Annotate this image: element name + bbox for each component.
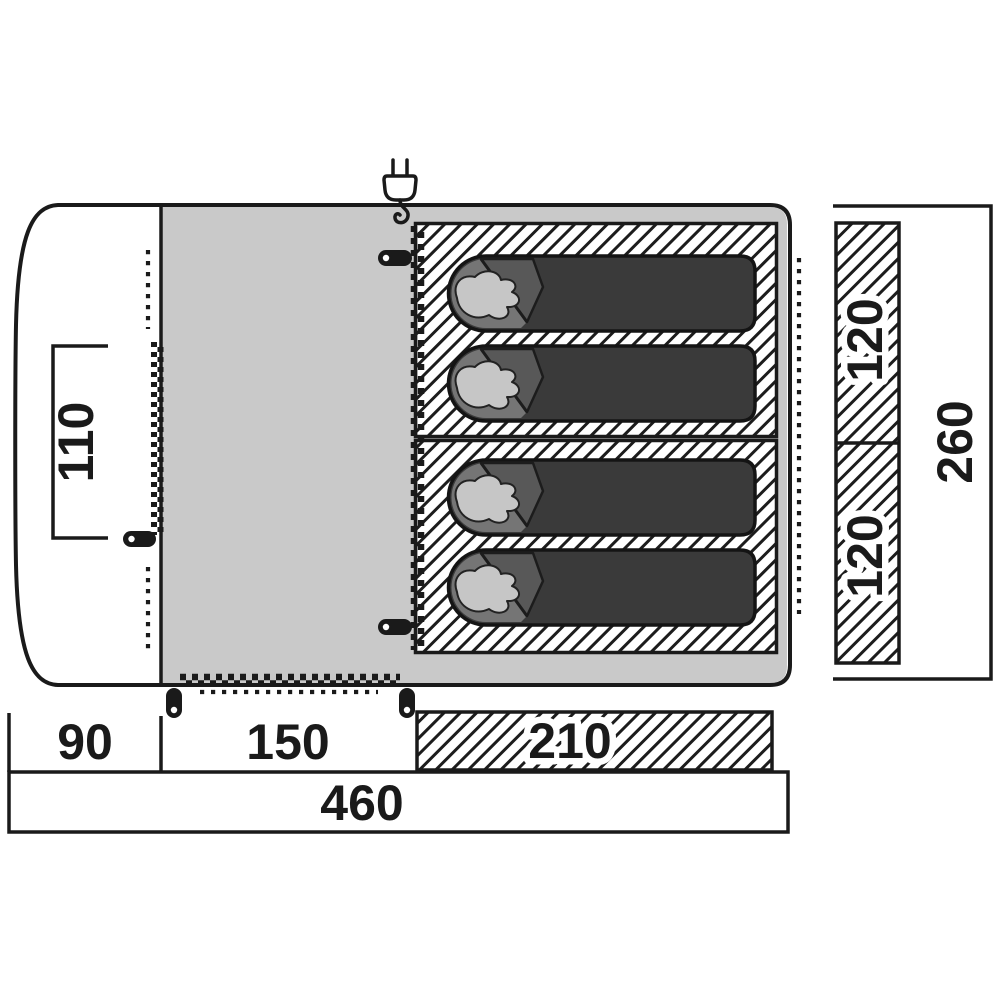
dimension-sections: 90 150 210 (9, 712, 772, 772)
sleeping-depth-label: 210 (528, 713, 611, 769)
door-width-label: 110 (48, 402, 104, 483)
zipper-pull-divider (123, 531, 156, 547)
zipper-pull-inner-bottom (378, 619, 412, 635)
pod-bottom-width-label: 120 (837, 514, 893, 597)
sleeping-bag-1 (449, 256, 756, 331)
porch-depth-label: 90 (57, 714, 113, 770)
dimension-pod-widths: 120 120 (836, 223, 899, 663)
living-depth-label: 150 (246, 714, 329, 770)
pod-top-width-label: 120 (837, 298, 893, 381)
total-length-label: 460 (320, 775, 403, 831)
sleeping-bag-4 (449, 550, 756, 625)
tent (15, 205, 790, 718)
zipper-pull-inner-top (378, 250, 412, 266)
tent-floorplan-svg: 110 120 120 260 90 150 210 460 (0, 0, 1000, 1000)
total-width-label: 260 (927, 400, 983, 483)
sleeping-bag-3 (449, 460, 756, 535)
sleeping-bag-2 (449, 346, 756, 421)
tent-floorplan-canvas: 110 120 120 260 90 150 210 460 (0, 0, 1000, 1000)
dimension-total-length: 460 (9, 772, 788, 832)
zipper-pull-entrance-left (166, 688, 182, 718)
zipper-pull-entrance-right (399, 688, 415, 718)
